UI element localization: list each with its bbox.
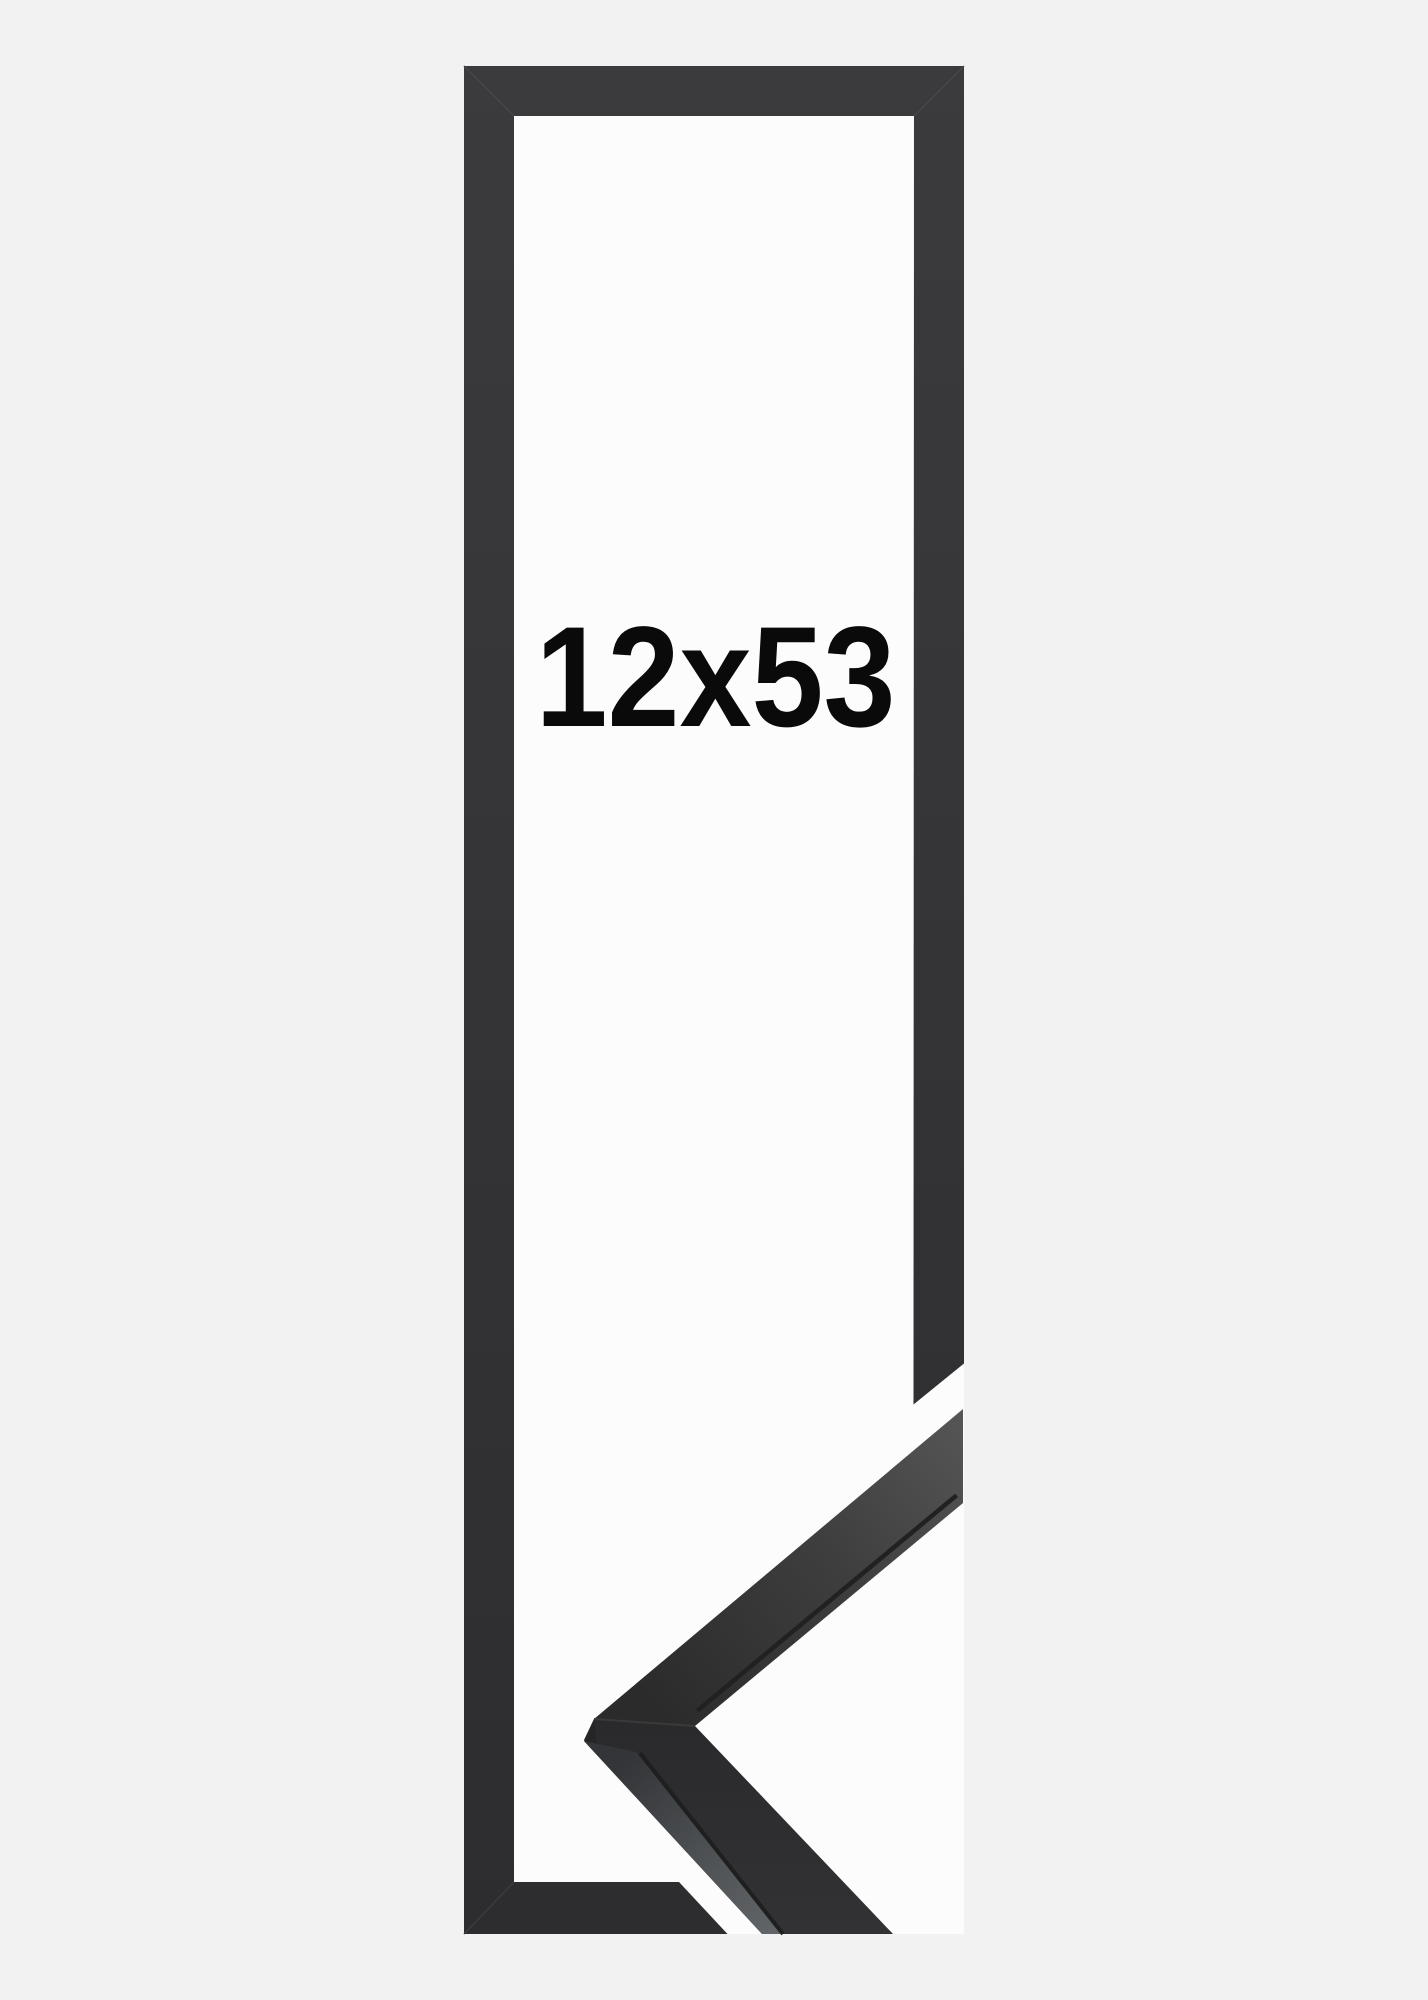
- svg-text:12x53: 12x53: [536, 597, 896, 756]
